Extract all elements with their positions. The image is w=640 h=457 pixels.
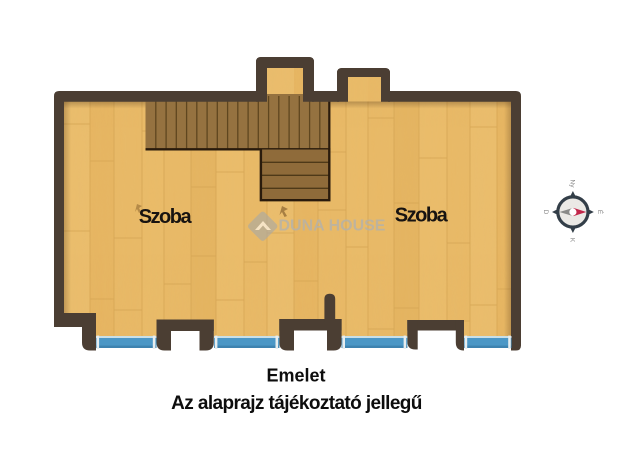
svg-text:Ny: Ny [568,180,575,189]
svg-text:Emelet: Emelet [266,366,325,386]
svg-text:D: D [542,210,549,215]
svg-text:Szoba: Szoba [395,204,449,226]
svg-text:DUNA HOUSE: DUNA HOUSE [279,217,386,234]
svg-text:É: É [596,210,605,215]
svg-text:Szoba: Szoba [139,206,193,228]
svg-text:Az alaprajz tájékoztató jelleg: Az alaprajz tájékoztató jellegű [171,393,422,414]
svg-text:K: K [568,238,575,243]
